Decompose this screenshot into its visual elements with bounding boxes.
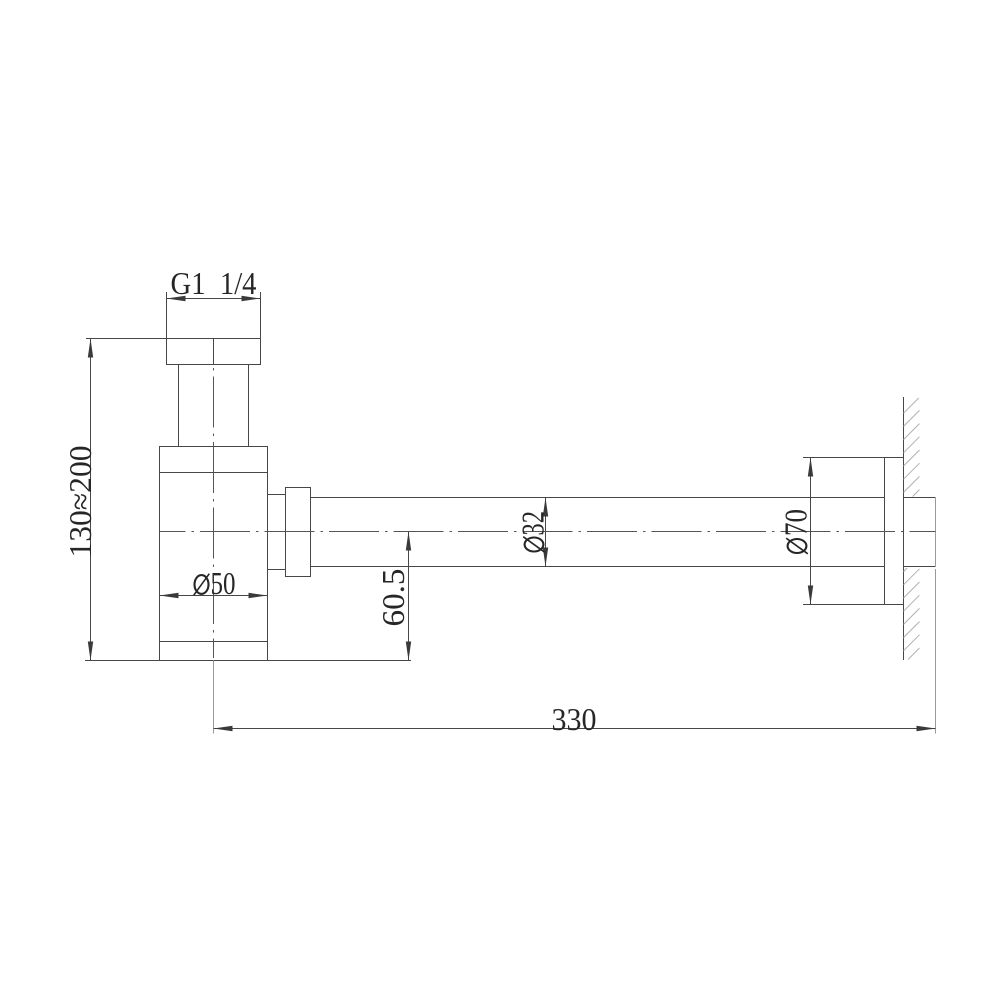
svg-text:70: 70 [778, 509, 814, 536]
svg-text:330: 330 [552, 701, 597, 737]
svg-text:60.5: 60.5 [375, 569, 411, 627]
svg-text:32: 32 [515, 511, 551, 536]
svg-text:G1 1/4: G1 1/4 [171, 265, 257, 301]
svg-text:130≈200: 130≈200 [62, 446, 98, 558]
svg-text:50: 50 [211, 565, 236, 601]
